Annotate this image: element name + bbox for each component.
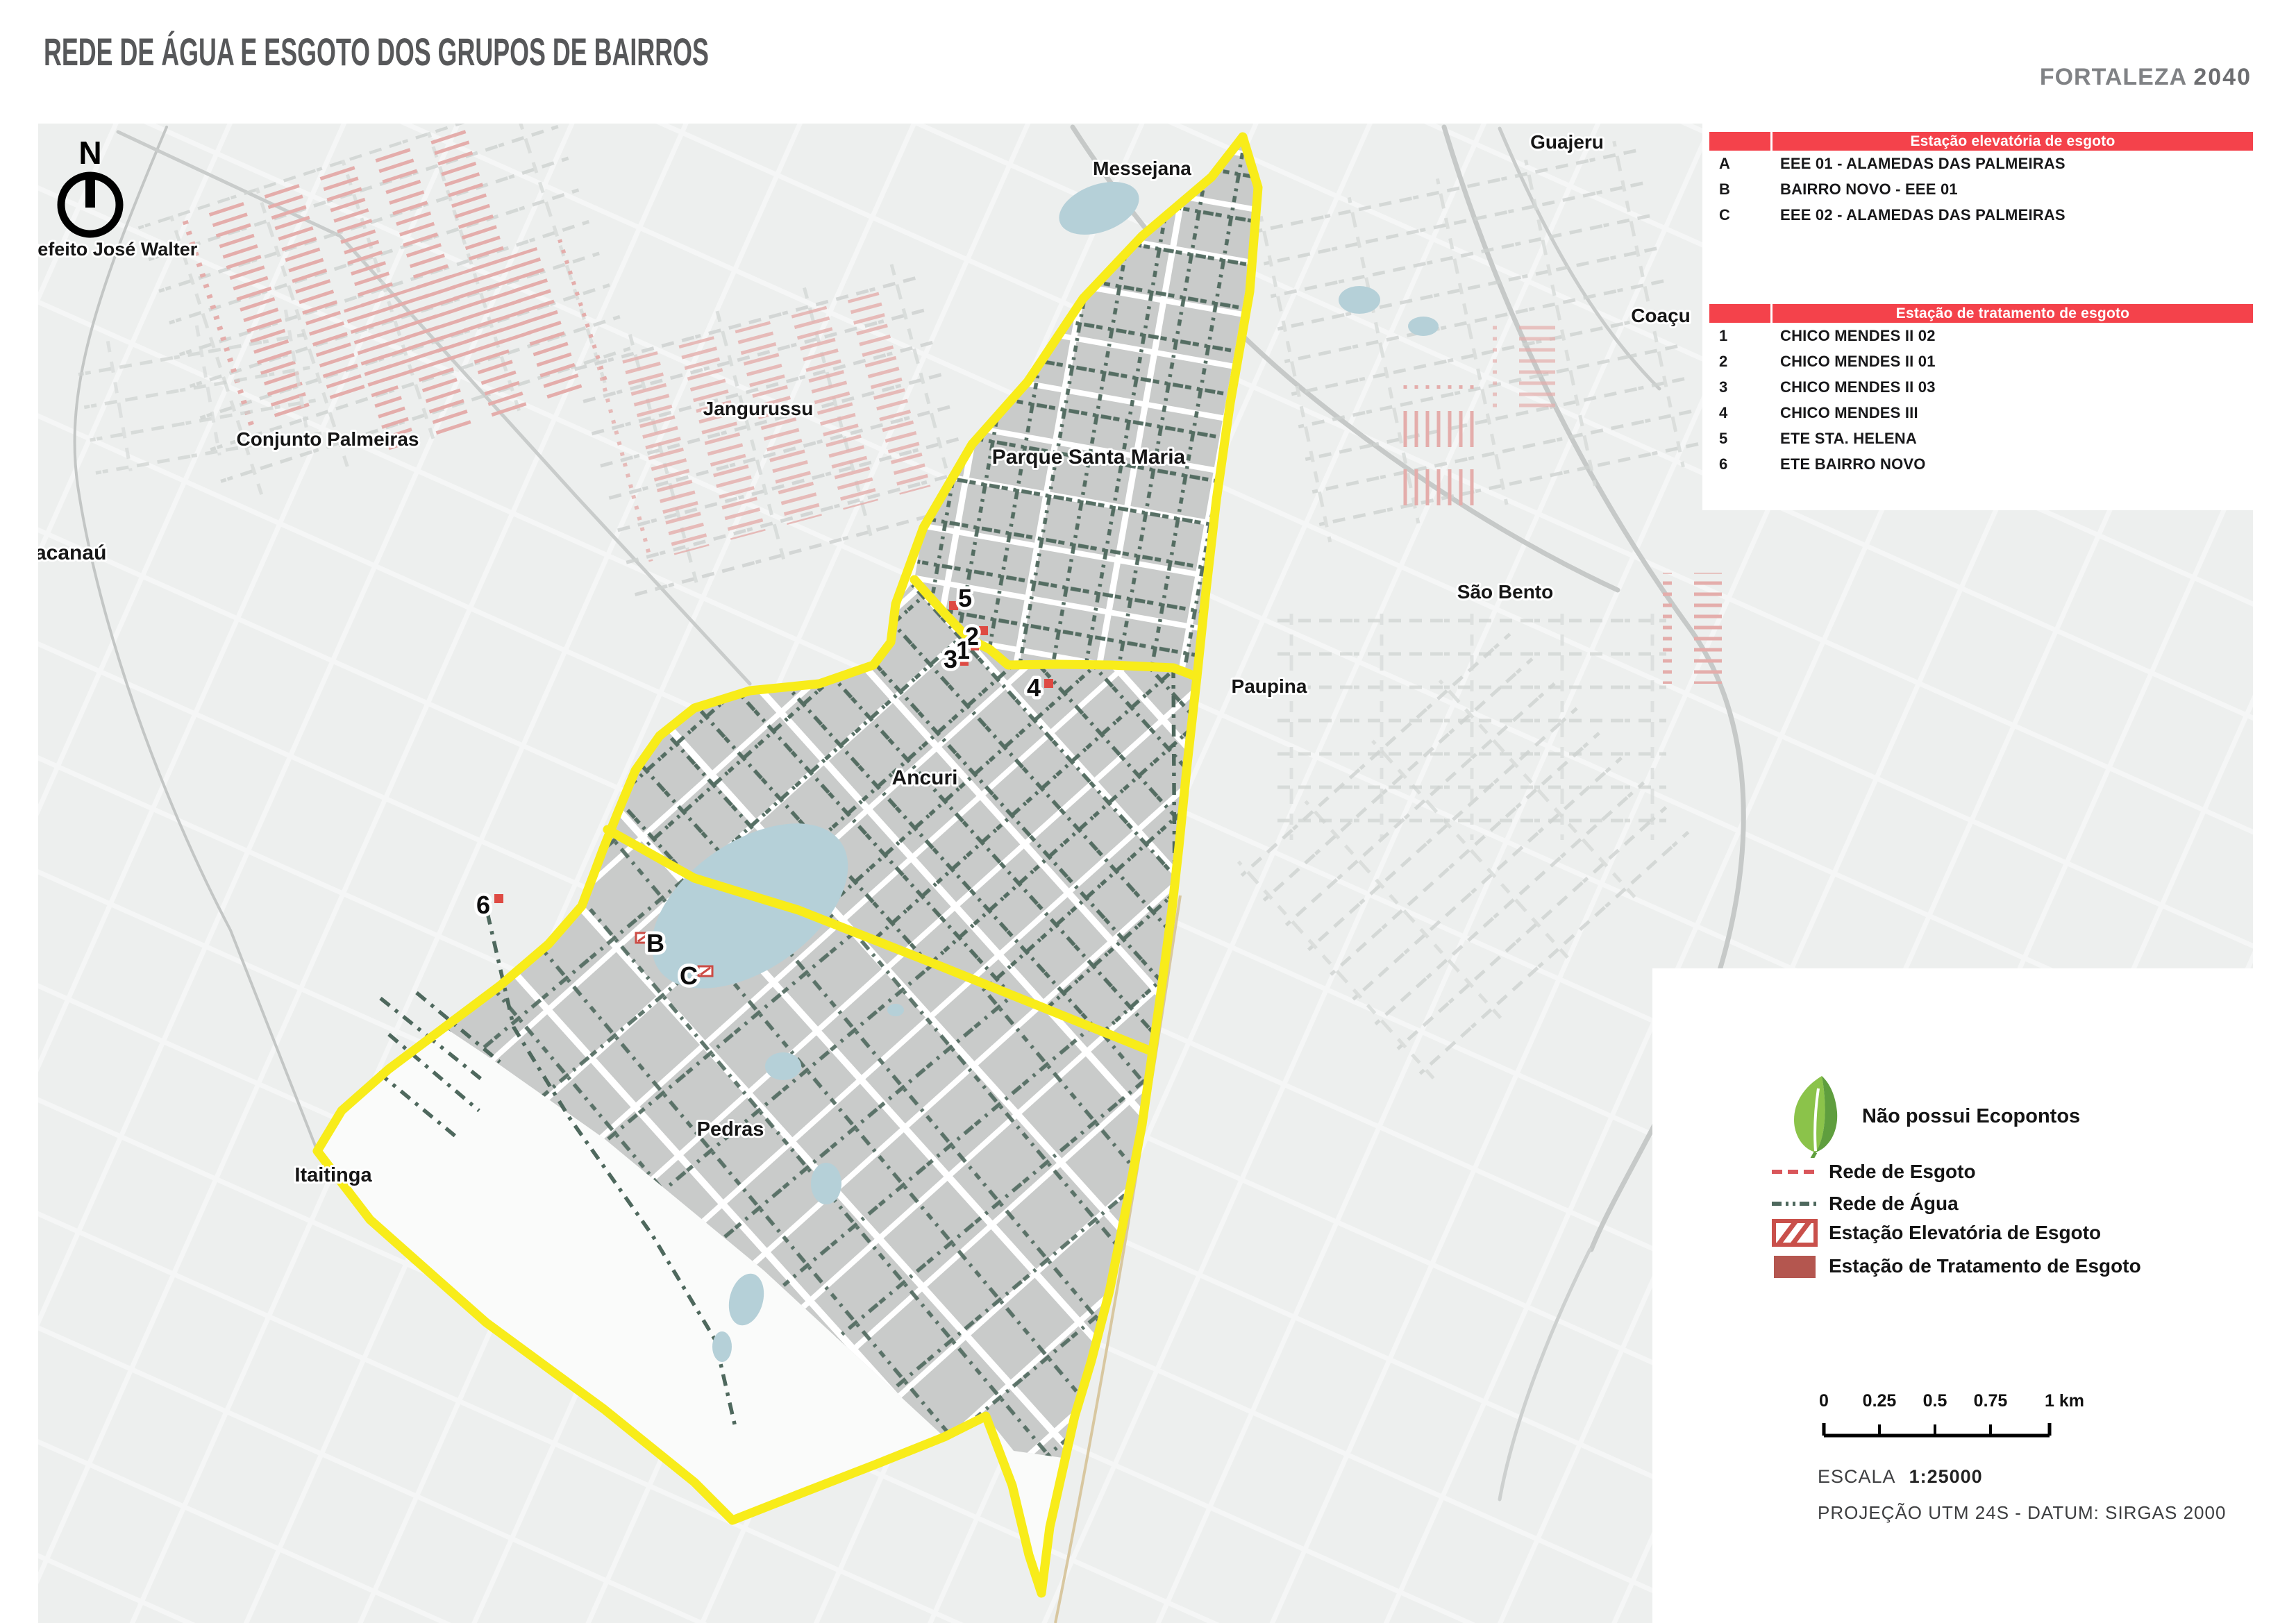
row-name: CHICO MENDES II 03: [1770, 374, 2253, 400]
north-letter: N: [78, 135, 101, 171]
escala-value: 1:25000: [1909, 1466, 1983, 1487]
marker-6: 6: [476, 891, 490, 919]
table-header: Estação elevatória de esgoto: [1709, 132, 2253, 151]
row-name: EEE 01 - ALAMEDAS DAS PALMEIRAS: [1770, 151, 2253, 176]
table-row: 6 ETE BAIRRO NOVO: [1709, 451, 2253, 477]
label-conjunto-palmeiras: Conjunto Palmeiras: [237, 428, 419, 450]
table-header: Estação de tratamento de esgoto: [1709, 304, 2253, 323]
marker-B: B: [646, 929, 664, 957]
legend-label: Não possui Ecopontos: [1862, 1105, 2080, 1128]
row-id: 5: [1709, 426, 1770, 451]
legend-label: Rede de Esgoto: [1829, 1161, 1976, 1183]
legend-panel-backing: [1652, 968, 2253, 1623]
table-row: A EEE 01 - ALAMEDAS DAS PALMEIRAS: [1709, 151, 2253, 176]
row-id: B: [1709, 176, 1770, 202]
table-estacao-elevatoria: Estação elevatória de esgoto A EEE 01 - …: [1709, 132, 2253, 228]
table-row: 5 ETE STA. HELENA: [1709, 426, 2253, 451]
scalebar-ruler: [1820, 1419, 2056, 1438]
row-id: 4: [1709, 400, 1770, 426]
water-line-swatch: [1772, 1200, 1818, 1208]
table-row: 4 CHICO MENDES III: [1709, 400, 2253, 426]
marker-5: 5: [958, 584, 972, 612]
table-row: 1 CHICO MENDES II 02: [1709, 323, 2253, 348]
label-pedras: Pedras: [697, 1118, 764, 1141]
table-row: 3 CHICO MENDES II 03: [1709, 374, 2253, 400]
escala-label: ESCALA: [1818, 1466, 1895, 1487]
label-guajeru: Guajeru: [1530, 131, 1604, 153]
row-name: ETE STA. HELENA: [1770, 426, 2253, 451]
scalebar-tick-075: 0.75: [1974, 1391, 2008, 1411]
marker-3: 3: [944, 645, 957, 673]
label-itaitinga: Itaitinga: [294, 1164, 372, 1186]
scalebar-tick-05: 0.5: [1923, 1391, 1947, 1411]
marker-C: C: [680, 961, 698, 990]
page-title: REDE DE ÁGUA E ESGOTO DOS GRUPOS DE BAIR…: [44, 29, 709, 74]
row-id: 1: [1709, 323, 1770, 348]
table-row: B BAIRRO NOVO - EEE 01: [1709, 176, 2253, 202]
label-parque-santa-maria: Parque Santa Maria: [992, 446, 1186, 469]
eee-hatch-swatch: [1772, 1219, 1818, 1247]
row-name: CHICO MENDES II 01: [1770, 348, 2253, 374]
table-header-id-cell: [1709, 132, 1770, 151]
label-maracanau: acanaú: [38, 541, 106, 564]
label-sao-bento: São Bento: [1457, 581, 1553, 603]
scalebar-tick-025: 0.25: [1863, 1391, 1897, 1411]
brand: FORTALEZA 2040: [2040, 64, 2252, 91]
sewage-line-swatch: [1772, 1168, 1818, 1176]
row-name: EEE 02 - ALAMEDAS DAS PALMEIRAS: [1770, 202, 2253, 228]
row-name: BAIRRO NOVO - EEE 01: [1770, 176, 2253, 202]
legend-rede-agua: Rede de Água: [1772, 1193, 1959, 1215]
label-ancuri: Ancuri: [891, 766, 957, 789]
label-paupina: Paupina: [1232, 675, 1307, 697]
legend-ete: Estação de Tratamento de Esgoto: [1772, 1252, 2141, 1280]
label-coacu: Coaçu: [1631, 305, 1691, 326]
legend-rede-esgoto: Rede de Esgoto: [1772, 1161, 1976, 1183]
leaf-icon: [1791, 1075, 1841, 1158]
row-id: 3: [1709, 374, 1770, 400]
table-row: 2 CHICO MENDES II 01: [1709, 348, 2253, 374]
row-id: C: [1709, 202, 1770, 228]
row-id: A: [1709, 151, 1770, 176]
legend-eee: Estação Elevatória de Esgoto: [1772, 1219, 2101, 1247]
brand-name: FORTALEZA: [2040, 64, 2186, 90]
row-name: CHICO MENDES II 02: [1770, 323, 2253, 348]
projecao-line: PROJEÇÃO UTM 24S - DATUM: SIRGAS 2000: [1818, 1502, 2226, 1524]
legend-ecopontos: Não possui Ecopontos: [1791, 1075, 2080, 1158]
legend-label: Estação de Tratamento de Esgoto: [1829, 1255, 2141, 1277]
table-estacao-tratamento: Estação de tratamento de esgoto 1 CHICO …: [1709, 304, 2253, 477]
row-id: 6: [1709, 451, 1770, 477]
label-messejana: Messejana: [1093, 158, 1191, 179]
escala-line: ESCALA 1:25000: [1818, 1466, 1983, 1488]
table-title: Estação de tratamento de esgoto: [1773, 304, 2253, 323]
row-id: 2: [1709, 348, 1770, 374]
table-header-id-cell: [1709, 304, 1770, 323]
map-poster: REDE DE ÁGUA E ESGOTO DOS GRUPOS DE BAIR…: [0, 0, 2296, 1623]
table-title: Estação elevatória de esgoto: [1773, 132, 2253, 151]
scalebar-tick-1km: 1 km: [2045, 1391, 2084, 1411]
legend-label: Estação Elevatória de Esgoto: [1829, 1222, 2101, 1244]
scalebar-tick-0: 0: [1819, 1391, 1829, 1411]
label-prefeito-jose-walter: Prefeito José Walter: [38, 239, 198, 260]
marker-1: 1: [956, 636, 970, 664]
label-jangurussu: Jangurussu: [703, 398, 814, 419]
table-row: C EEE 02 - ALAMEDAS DAS PALMEIRAS: [1709, 202, 2253, 228]
row-name: ETE BAIRRO NOVO: [1770, 451, 2253, 477]
legend-label: Rede de Água: [1829, 1193, 1959, 1215]
marker-4: 4: [1027, 673, 1041, 702]
brand-year: 2040: [2193, 64, 2252, 90]
row-name: CHICO MENDES III: [1770, 400, 2253, 426]
ete-solid-swatch: [1772, 1252, 1818, 1280]
